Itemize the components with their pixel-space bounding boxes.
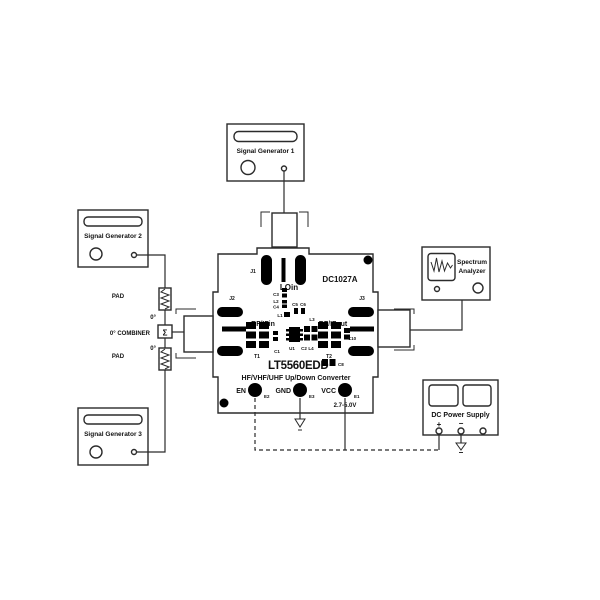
test-setup-diagram: Signal Generator 1 Signal Generator 2 Si… [0, 0, 600, 600]
phase-top-label: 0° [150, 315, 156, 321]
pad-bottom-label: PAD [112, 354, 125, 360]
rf-output-port [132, 253, 137, 258]
j2-pad-icon [217, 307, 243, 317]
l1-ref: L1 [277, 313, 283, 318]
j1-ref: J1 [250, 269, 256, 275]
connector-bracket-icon [176, 353, 196, 358]
signal-generator-2-label: Signal Generator 2 [84, 233, 142, 240]
j3-ref: J3 [359, 296, 365, 302]
mounting-hole-icon [364, 256, 373, 265]
dc-power-supply-label: DC Power Supply [431, 412, 489, 419]
j3-pad-icon [348, 307, 374, 317]
aux-terminal-port [480, 428, 486, 434]
j1-pad-icon [295, 255, 306, 285]
phase-bottom-label: 0° [150, 346, 156, 352]
diagram-canvas: Signal Generator 1 Signal Generator 2 Si… [0, 0, 600, 600]
c2-ref: C2 [301, 346, 307, 351]
c8-pad-icon [330, 359, 336, 366]
demo-board: J1 LOin DC1027A J2 J3 RF/IFin RF/IFout T… [176, 212, 462, 413]
combiner-chain: PAD 0° 0° COMBINER Σ 0° PAD [110, 288, 184, 370]
dc-power-supply: DC Power Supply + − [423, 380, 498, 453]
e3-ref: E3 [309, 394, 315, 399]
knob-icon [90, 248, 102, 260]
wire-board-to-analyzer [410, 300, 462, 330]
en-label: EN [236, 388, 246, 395]
j3-center-pin-icon [350, 327, 374, 332]
knob-icon [473, 283, 483, 293]
meter-display-icon [463, 385, 491, 406]
l4-ref: L4 [308, 346, 314, 351]
vcc-label: VCC [321, 388, 336, 395]
l3-ref: L3 [309, 317, 315, 322]
spectrum-analyzer-label-2: Analyzer [458, 268, 486, 275]
minus-terminal-port [458, 428, 464, 434]
sigma-icon: Σ [163, 329, 168, 338]
connector-bracket-icon [176, 309, 196, 314]
board-model-label: DC1027A [322, 275, 357, 284]
gnd-turret-icon [293, 383, 307, 397]
part-number-label: LT5560EDD [268, 360, 328, 372]
c4-ref: C4 [273, 305, 279, 310]
sma-connector-rf-out [378, 310, 410, 347]
sma-connector-lo [272, 213, 297, 247]
minus-terminal-label: − [459, 419, 464, 428]
e2-ref: E2 [264, 394, 270, 399]
en-turret-icon [248, 383, 262, 397]
j2-ref: J2 [229, 296, 235, 302]
signal-generator-1-label: Signal Generator 1 [237, 148, 295, 155]
signal-generator-3: Signal Generator 3 [78, 370, 165, 465]
connector-bracket-icon [299, 212, 308, 227]
j2-center-pin-icon [222, 327, 246, 332]
u1-ref: U1 [289, 346, 295, 351]
rf-output-port [132, 450, 137, 455]
meter-display-icon [429, 385, 458, 406]
j1-pad-icon [261, 255, 272, 285]
c8-ref: C8 [338, 362, 344, 367]
c5-ref: C5 [292, 302, 298, 307]
display-bar-icon [84, 415, 142, 424]
ground-symbol-icon [456, 443, 466, 453]
gnd-label: GND [275, 388, 291, 395]
knob-icon [241, 161, 255, 175]
j3-pad-icon [348, 346, 374, 356]
signal-generator-3-label: Signal Generator 3 [84, 431, 142, 438]
connector-bracket-icon [261, 212, 270, 227]
board-description-label: HF/VHF/UHF Up/Down Converter [242, 375, 351, 382]
u1-ic-icon [286, 327, 303, 342]
t1-ref: T1 [254, 354, 260, 360]
signal-generator-1: Signal Generator 1 [227, 124, 304, 213]
j1-center-pin-icon [282, 258, 286, 282]
e1-ref: E1 [354, 394, 360, 399]
combiner-label: 0° COMBINER [110, 331, 151, 337]
sma-connector-rf-in [184, 316, 213, 352]
pad-top-label: PAD [112, 294, 125, 300]
spectrum-analyzer-label-1: Spectrum [457, 259, 487, 266]
rf-input-port [435, 287, 440, 292]
knob-icon [90, 446, 102, 458]
display-bar-icon [234, 132, 297, 142]
l2-ref: L2 [273, 299, 279, 304]
c10-ref: C10 [348, 336, 357, 341]
c6-ref: C6 [300, 302, 306, 307]
signal-generator-2: Signal Generator 2 [78, 210, 165, 288]
ground-symbol-icon [295, 419, 305, 430]
mounting-hole-icon [220, 399, 229, 408]
spectrum-analyzer: Spectrum Analyzer [422, 247, 490, 300]
c3-ref: C3 [273, 292, 279, 297]
j2-pad-icon [217, 346, 243, 356]
vcc-turret-icon [338, 383, 352, 397]
rf-output-port [282, 166, 287, 171]
display-bar-icon [84, 217, 142, 226]
plus-terminal-port [436, 428, 442, 434]
c1-ref: C1 [274, 349, 280, 354]
c8-pad-icon [322, 359, 328, 366]
